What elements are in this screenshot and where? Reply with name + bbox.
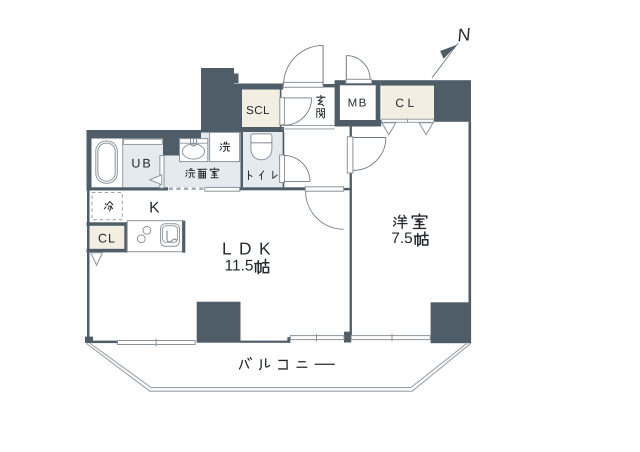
svg-text:LDK: LDK xyxy=(222,238,278,258)
svg-text:CL: CL xyxy=(395,96,417,110)
svg-text:SCL: SCL xyxy=(246,105,270,117)
svg-text:UB: UB xyxy=(131,157,152,171)
svg-text:11.5: 11.5 xyxy=(224,258,253,275)
svg-text:7.5: 7.5 xyxy=(391,230,412,247)
svg-text:CL: CL xyxy=(98,231,116,245)
svg-text:MB: MB xyxy=(348,98,368,110)
svg-text:K: K xyxy=(149,199,160,216)
